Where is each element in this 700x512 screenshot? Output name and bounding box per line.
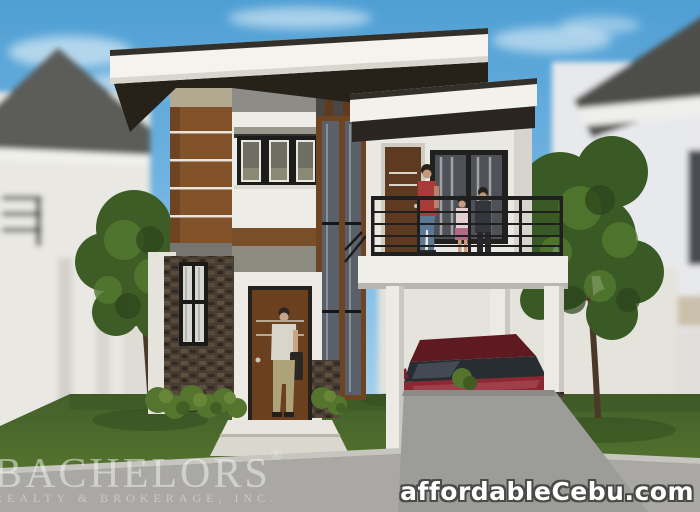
upper-window: [234, 127, 318, 189]
stone-pillar-window: [179, 262, 208, 346]
wood-slat-column: [170, 80, 232, 271]
house-rendering-scene: [0, 0, 700, 512]
balcony-wall-shade: [514, 110, 532, 262]
balcony-slab: [358, 256, 568, 289]
rendering-canvas: BACHELORS® REALTY & BROKERAGE, INC. affo…: [0, 0, 700, 512]
carport-post-left: [386, 286, 404, 454]
entrance-steps: [210, 420, 350, 456]
